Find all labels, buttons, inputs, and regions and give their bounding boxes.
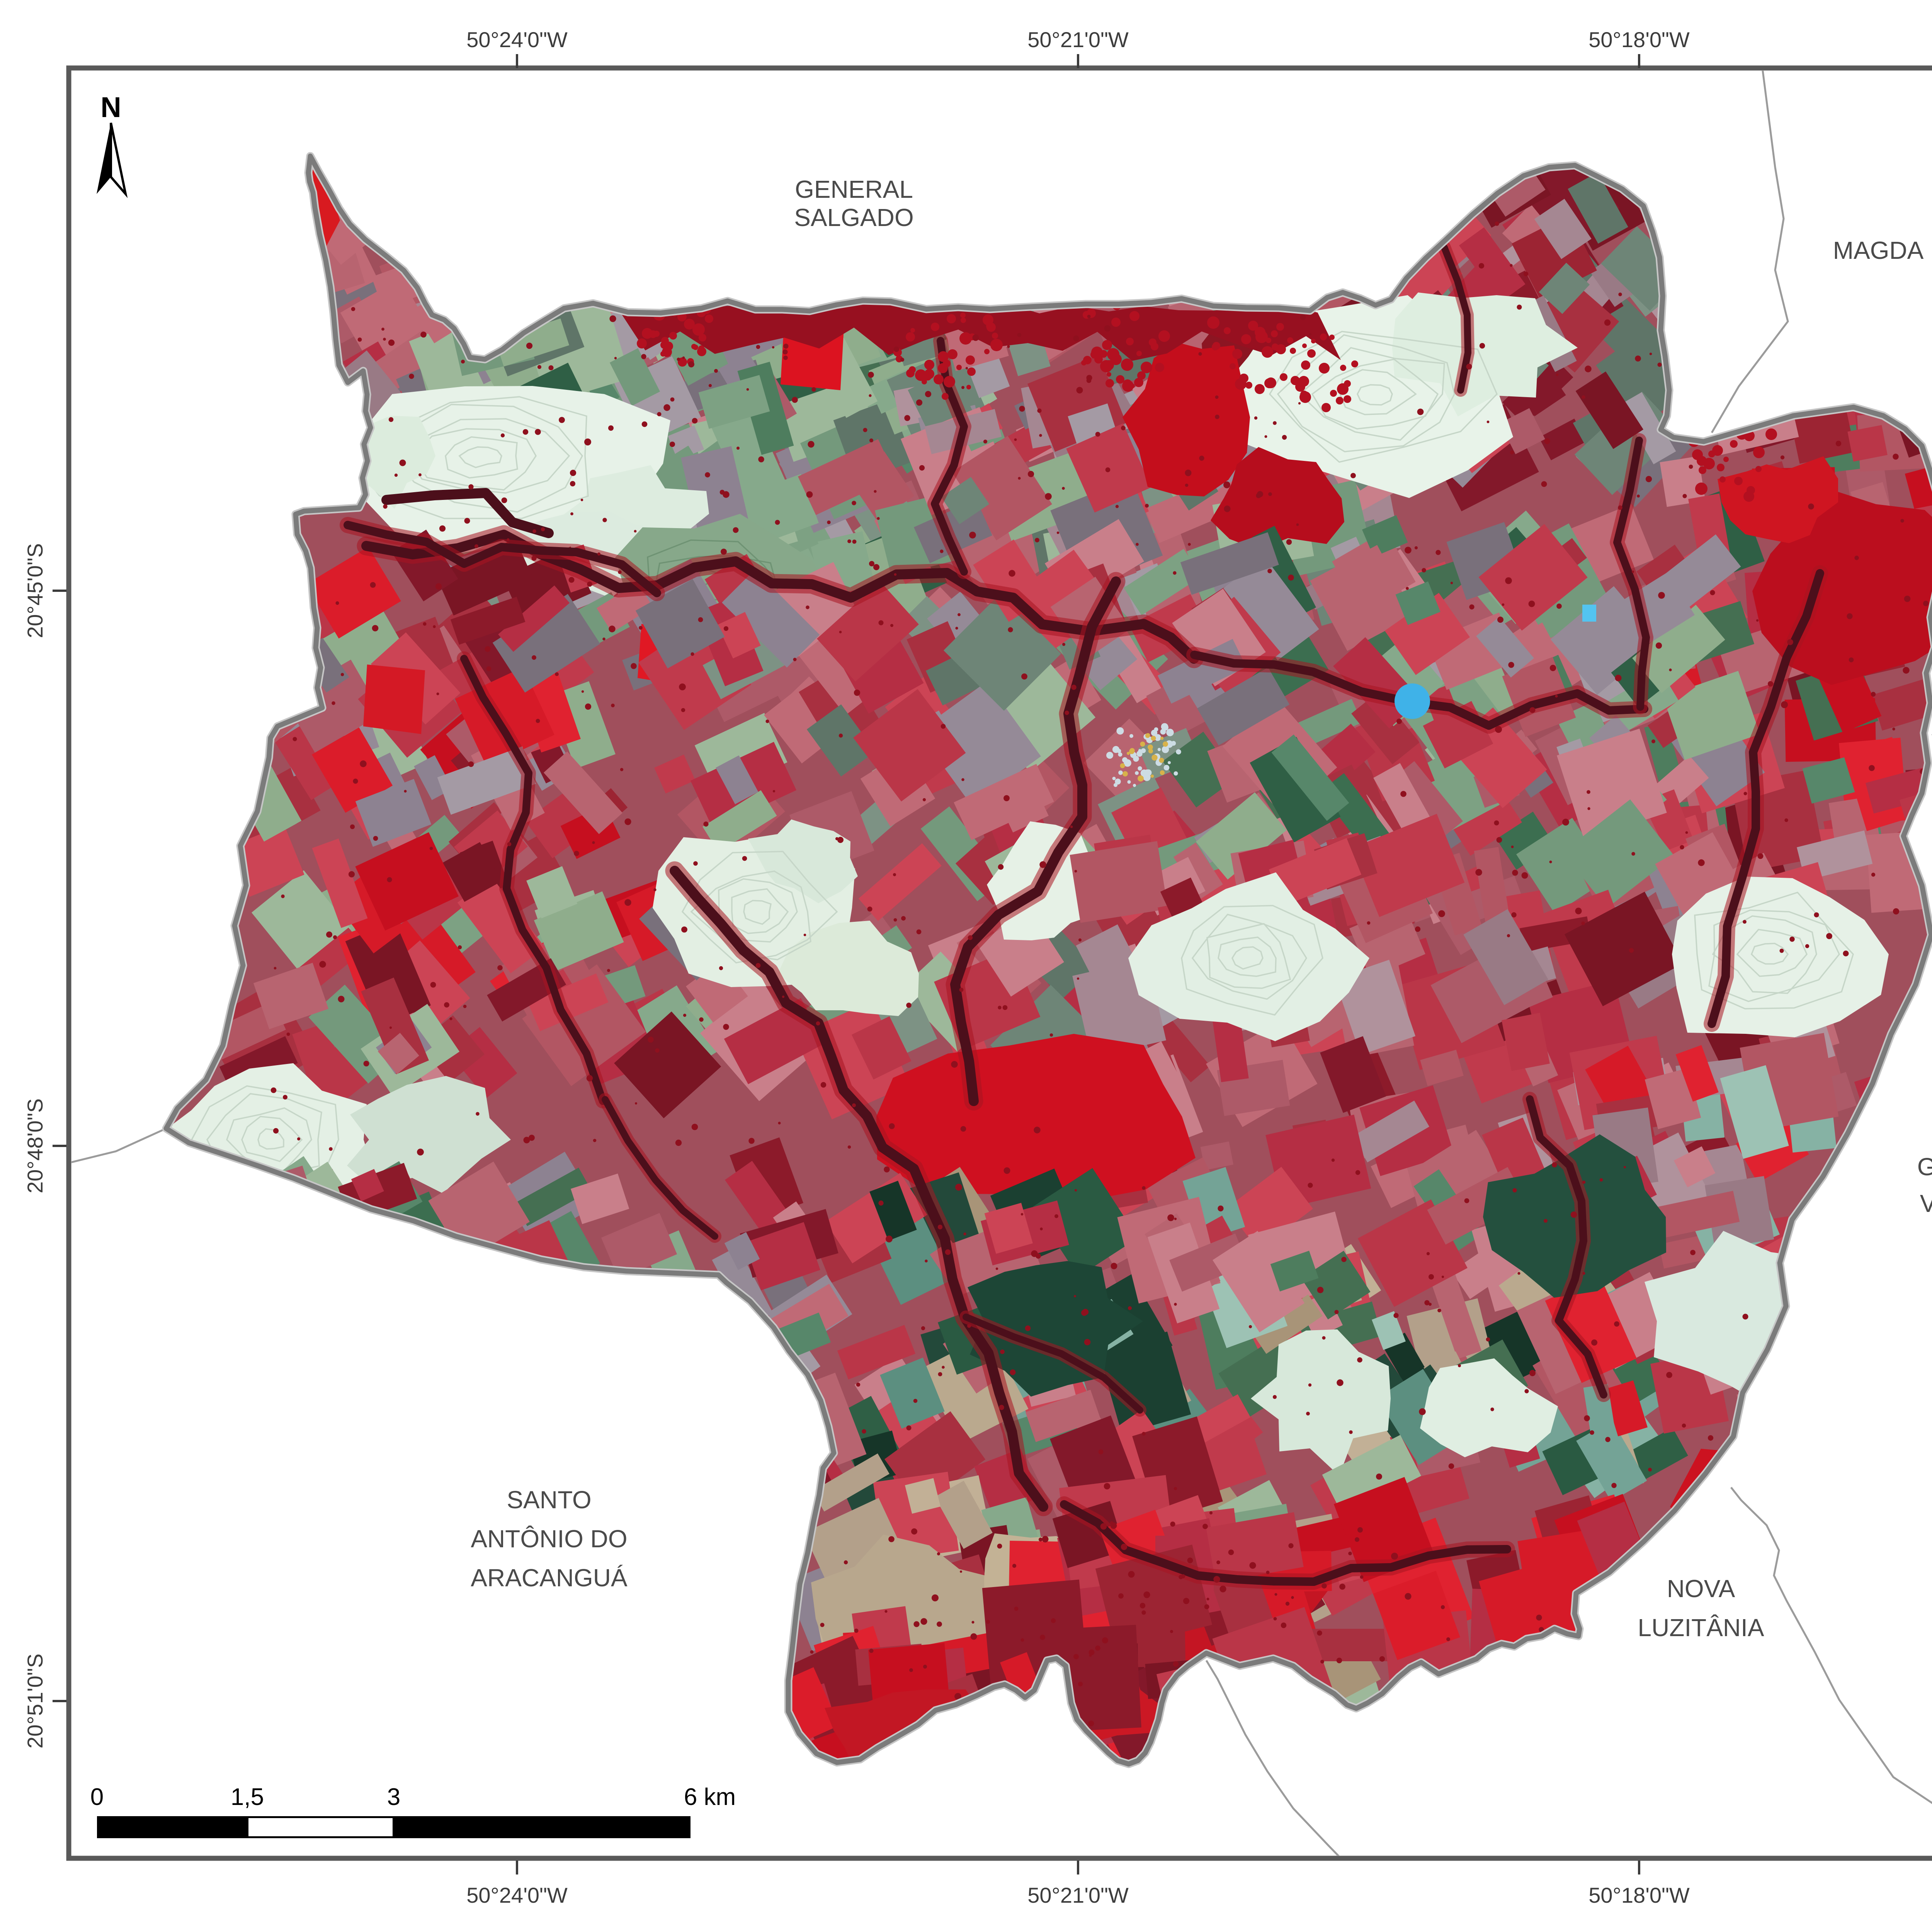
svg-text:SANTO: SANTO <box>507 1486 591 1514</box>
svg-text:50°21'0"W: 50°21'0"W <box>1027 1883 1129 1907</box>
svg-text:VIDIGAL: VIDIGAL <box>1920 1190 1932 1217</box>
svg-text:50°24'0"W: 50°24'0"W <box>466 1883 568 1907</box>
svg-text:20°51'0"S: 20°51'0"S <box>23 1654 47 1749</box>
svg-text:N: N <box>100 91 121 123</box>
svg-text:50°24'0"W: 50°24'0"W <box>466 27 568 52</box>
svg-text:ARACANGUÁ: ARACANGUÁ <box>471 1564 628 1592</box>
svg-text:GENERAL: GENERAL <box>795 175 913 203</box>
svg-text:6 km: 6 km <box>684 1784 736 1810</box>
svg-text:50°18'0"W: 50°18'0"W <box>1588 27 1690 52</box>
svg-text:0: 0 <box>90 1784 104 1810</box>
svg-text:50°18'0"W: 50°18'0"W <box>1588 1883 1690 1907</box>
svg-text:NOVA: NOVA <box>1667 1575 1735 1603</box>
svg-text:20°48'0"S: 20°48'0"S <box>23 1098 47 1193</box>
svg-text:1,5: 1,5 <box>231 1784 264 1810</box>
svg-text:MAGDA: MAGDA <box>1833 236 1924 264</box>
svg-text:GASTÃO: GASTÃO <box>1917 1153 1932 1181</box>
svg-text:ANTÔNIO DO: ANTÔNIO DO <box>471 1525 627 1553</box>
svg-text:50°21'0"W: 50°21'0"W <box>1027 27 1129 52</box>
svg-text:SALGADO: SALGADO <box>794 204 913 231</box>
svg-text:20°45'0"S: 20°45'0"S <box>23 543 47 638</box>
svg-text:3: 3 <box>387 1784 400 1810</box>
svg-text:LUZITÂNIA: LUZITÂNIA <box>1638 1614 1764 1642</box>
